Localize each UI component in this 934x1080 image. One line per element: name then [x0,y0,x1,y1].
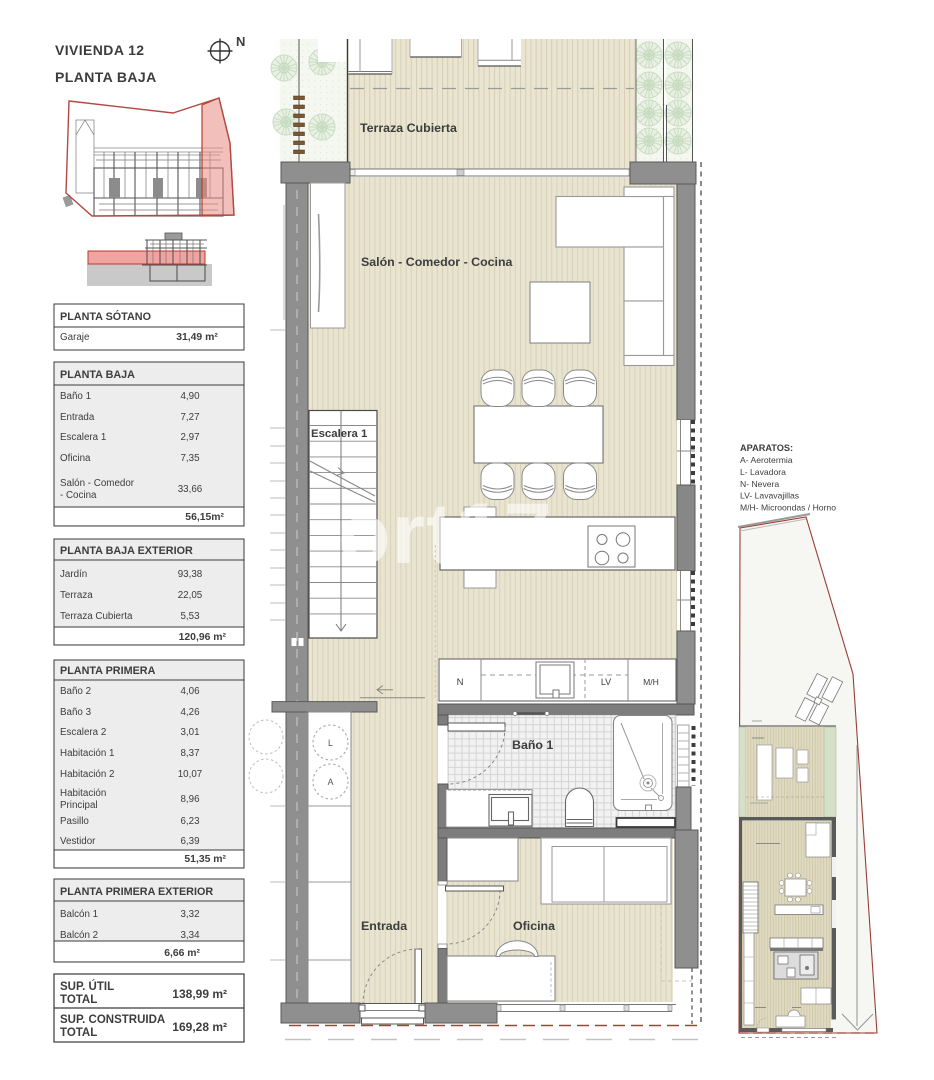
svg-text:Baño 2: Baño 2 [60,686,91,697]
svg-text:3,34: 3,34 [180,930,200,941]
svg-text:7,27: 7,27 [180,412,199,423]
svg-text:TOTAL: TOTAL [60,994,97,1006]
svg-text:3,32: 3,32 [180,909,199,920]
svg-text:LV: LV [601,677,611,687]
svg-text:Baño 1: Baño 1 [60,391,91,402]
svg-text:A: A [328,777,334,787]
svg-text:169,28 m²: 169,28 m² [172,1020,227,1034]
svg-text:PLANTA PRIMERA EXTERIOR: PLANTA PRIMERA EXTERIOR [60,886,213,898]
svg-text:L: L [328,738,333,748]
svg-text:Terraza Cubierta: Terraza Cubierta [60,611,133,622]
svg-text:Terraza: Terraza [60,590,93,601]
svg-text:17: 17 [455,486,553,582]
svg-text:Vestidor: Vestidor [60,836,96,847]
svg-text:Baño 1: Baño 1 [512,738,553,752]
svg-text:Balcón 2: Balcón 2 [60,930,98,941]
svg-text:Entrada: Entrada [60,412,95,423]
svg-text:Oficina: Oficina [513,919,555,933]
svg-text:N: N [236,34,245,49]
svg-text:2,97: 2,97 [180,432,199,443]
svg-text:PLANTA BAJA EXTERIOR: PLANTA BAJA EXTERIOR [60,545,193,557]
svg-text:LV- Lavavajillas: LV- Lavavajillas [740,491,799,501]
svg-text:7,35: 7,35 [180,453,200,464]
svg-text:6,39: 6,39 [180,836,199,847]
svg-text:138,99 m²: 138,99 m² [172,987,227,1001]
svg-text:PLANTA BAJA: PLANTA BAJA [55,69,157,85]
svg-text:8,37: 8,37 [180,748,199,759]
svg-text:L- Lavadora: L- Lavadora [740,467,786,477]
svg-text:22,05: 22,05 [178,590,203,601]
svg-text:56,15m²: 56,15m² [185,512,224,523]
svg-text:PLANTA SÓTANO: PLANTA SÓTANO [60,310,151,323]
svg-text:4,06: 4,06 [180,686,200,697]
svg-text:6,23: 6,23 [180,816,200,827]
svg-text:M/H- Microondas / Horno: M/H- Microondas / Horno [740,503,836,513]
svg-text:N: N [457,677,464,688]
svg-text:93,38: 93,38 [178,569,203,580]
svg-text:Escalera 2: Escalera 2 [60,727,106,738]
svg-text:10,07: 10,07 [178,769,203,780]
svg-text:Jardín: Jardín [60,569,87,580]
svg-text:4,26: 4,26 [180,707,200,718]
svg-text:5,53: 5,53 [180,611,200,622]
svg-text:SUP. CONSTRUIDA: SUP. CONSTRUIDA [60,1014,165,1026]
svg-text:Terraza Cubierta: Terraza Cubierta [360,121,457,135]
svg-text:Habitación 1: Habitación 1 [60,748,114,759]
svg-text:8,96: 8,96 [180,794,200,805]
svg-text:Escalera 1: Escalera 1 [311,428,368,440]
svg-text:ort: ort [338,486,456,582]
svg-text:51,35 m²: 51,35 m² [184,854,226,865]
svg-text:M/H: M/H [643,677,659,687]
svg-text:SUP. ÚTIL: SUP. ÚTIL [60,980,114,993]
svg-text:PLANTA PRIMERA: PLANTA PRIMERA [60,665,156,677]
svg-text:Balcón 1: Balcón 1 [60,909,98,920]
svg-text:Entrada: Entrada [361,919,407,933]
svg-text:Pasillo: Pasillo [60,816,89,827]
svg-text:Salón - Comedor: Salón - Comedor [60,478,135,489]
svg-text:6,66 m²: 6,66 m² [164,948,200,959]
svg-text:31,49 m²: 31,49 m² [176,332,218,343]
svg-text:Escalera 1: Escalera 1 [60,432,106,443]
svg-text:Salón - Comedor - Cocina: Salón - Comedor - Cocina [361,255,513,269]
svg-text:A- Aerotermia: A- Aerotermia [740,455,793,465]
svg-text:Oficina: Oficina [60,453,91,464]
svg-text:VIVIENDA 12: VIVIENDA 12 [55,42,144,58]
svg-text:Principal: Principal [60,800,98,811]
svg-text:Baño 3: Baño 3 [60,707,92,718]
svg-text:N- Nevera: N- Nevera [740,479,779,489]
svg-text:PLANTA BAJA: PLANTA BAJA [60,369,135,381]
svg-text:TOTAL: TOTAL [60,1027,97,1039]
svg-text:3,01: 3,01 [180,727,199,738]
svg-text:APARATOS:: APARATOS: [740,443,793,453]
svg-text:4,90: 4,90 [180,391,200,402]
svg-text:120,96 m²: 120,96 m² [179,632,227,643]
svg-text:Garaje: Garaje [60,332,90,343]
svg-text:33,66: 33,66 [178,484,203,495]
svg-text:Habitación 2: Habitación 2 [60,769,114,780]
svg-text:Habitación: Habitación [60,788,106,799]
svg-text:- Cocina: - Cocina [60,490,97,501]
